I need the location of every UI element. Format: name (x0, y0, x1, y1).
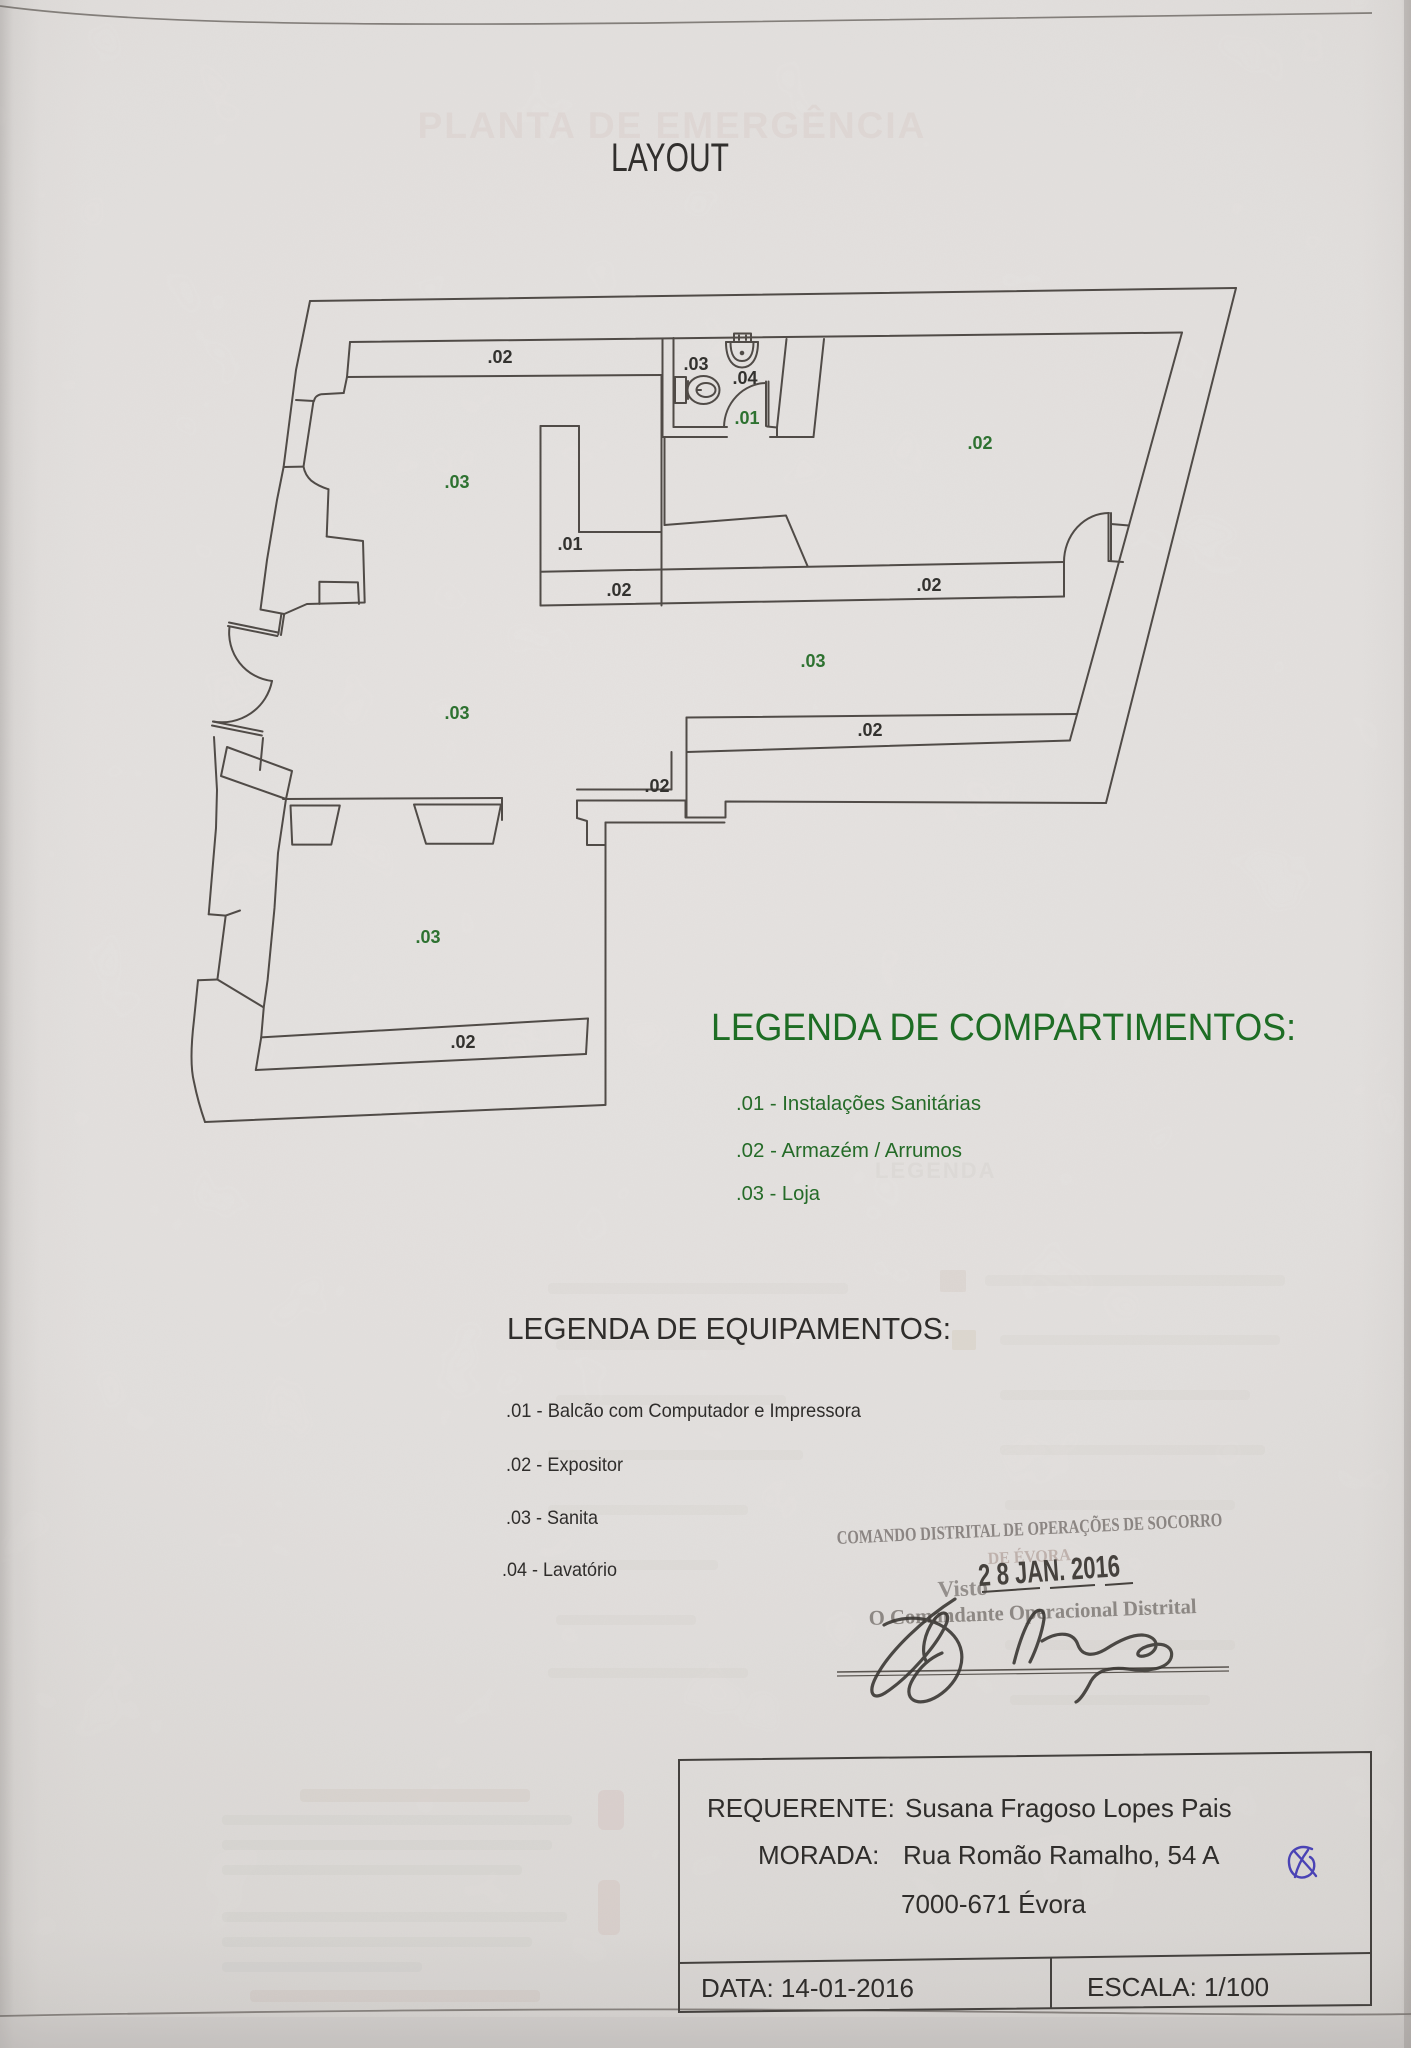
svg-text:.02: .02 (644, 776, 669, 796)
svg-text:.02: .02 (450, 1032, 475, 1052)
svg-text:LAYOUT: LAYOUT (611, 136, 729, 180)
svg-text:.03 - Loja: .03 - Loja (736, 1183, 821, 1205)
svg-text:REQUERENTE:Susana Fragoso Lope: REQUERENTE:Susana Fragoso Lopes Pais (707, 1793, 1232, 1823)
svg-text:.02: .02 (916, 575, 941, 595)
svg-text:.02 - Armazém / Arrumos: .02 - Armazém / Arrumos (736, 1140, 962, 1162)
svg-text:LEGENDA DE EQUIPAMENTOS:: LEGENDA DE EQUIPAMENTOS: (507, 1311, 951, 1346)
svg-text:.02: .02 (967, 433, 992, 453)
svg-text:.03: .03 (444, 472, 469, 492)
svg-text:7000-671 Évora: 7000-671 Évora (901, 1889, 1087, 1919)
svg-text:LEGENDA DE COMPARTIMENTOS:: LEGENDA DE COMPARTIMENTOS: (711, 1007, 1296, 1049)
svg-text:.04 - Lavatório: .04 - Lavatório (502, 1559, 617, 1581)
svg-text:.02 - Expositor: .02 - Expositor (506, 1454, 623, 1476)
svg-text:.01: .01 (557, 534, 582, 554)
svg-text:.03: .03 (415, 927, 440, 947)
svg-text:.01: .01 (734, 408, 759, 428)
svg-text:.03: .03 (444, 703, 469, 723)
svg-text:DATA: 14-01-2016: DATA: 14-01-2016 (701, 1973, 914, 2003)
svg-text:.01 - Instalações Sanitárias: .01 - Instalações Sanitárias (736, 1093, 981, 1115)
svg-text:.02: .02 (487, 347, 512, 367)
svg-text:.03: .03 (683, 354, 708, 374)
svg-text:MORADA:Rua Romão Ramalho, 54 A: MORADA:Rua Romão Ramalho, 54 A (758, 1840, 1220, 1870)
svg-text:.03 - Sanita: .03 - Sanita (506, 1507, 598, 1529)
svg-text:.03: .03 (800, 651, 825, 671)
svg-text:.02: .02 (606, 580, 631, 600)
svg-text:.02: .02 (857, 720, 882, 740)
svg-text:ESCALA: 1/100: ESCALA: 1/100 (1087, 1972, 1269, 2002)
svg-text:.04: .04 (732, 368, 757, 388)
svg-text:.01 - Balcão com Computador e: .01 - Balcão com Computador e Impressora (506, 1400, 861, 1422)
